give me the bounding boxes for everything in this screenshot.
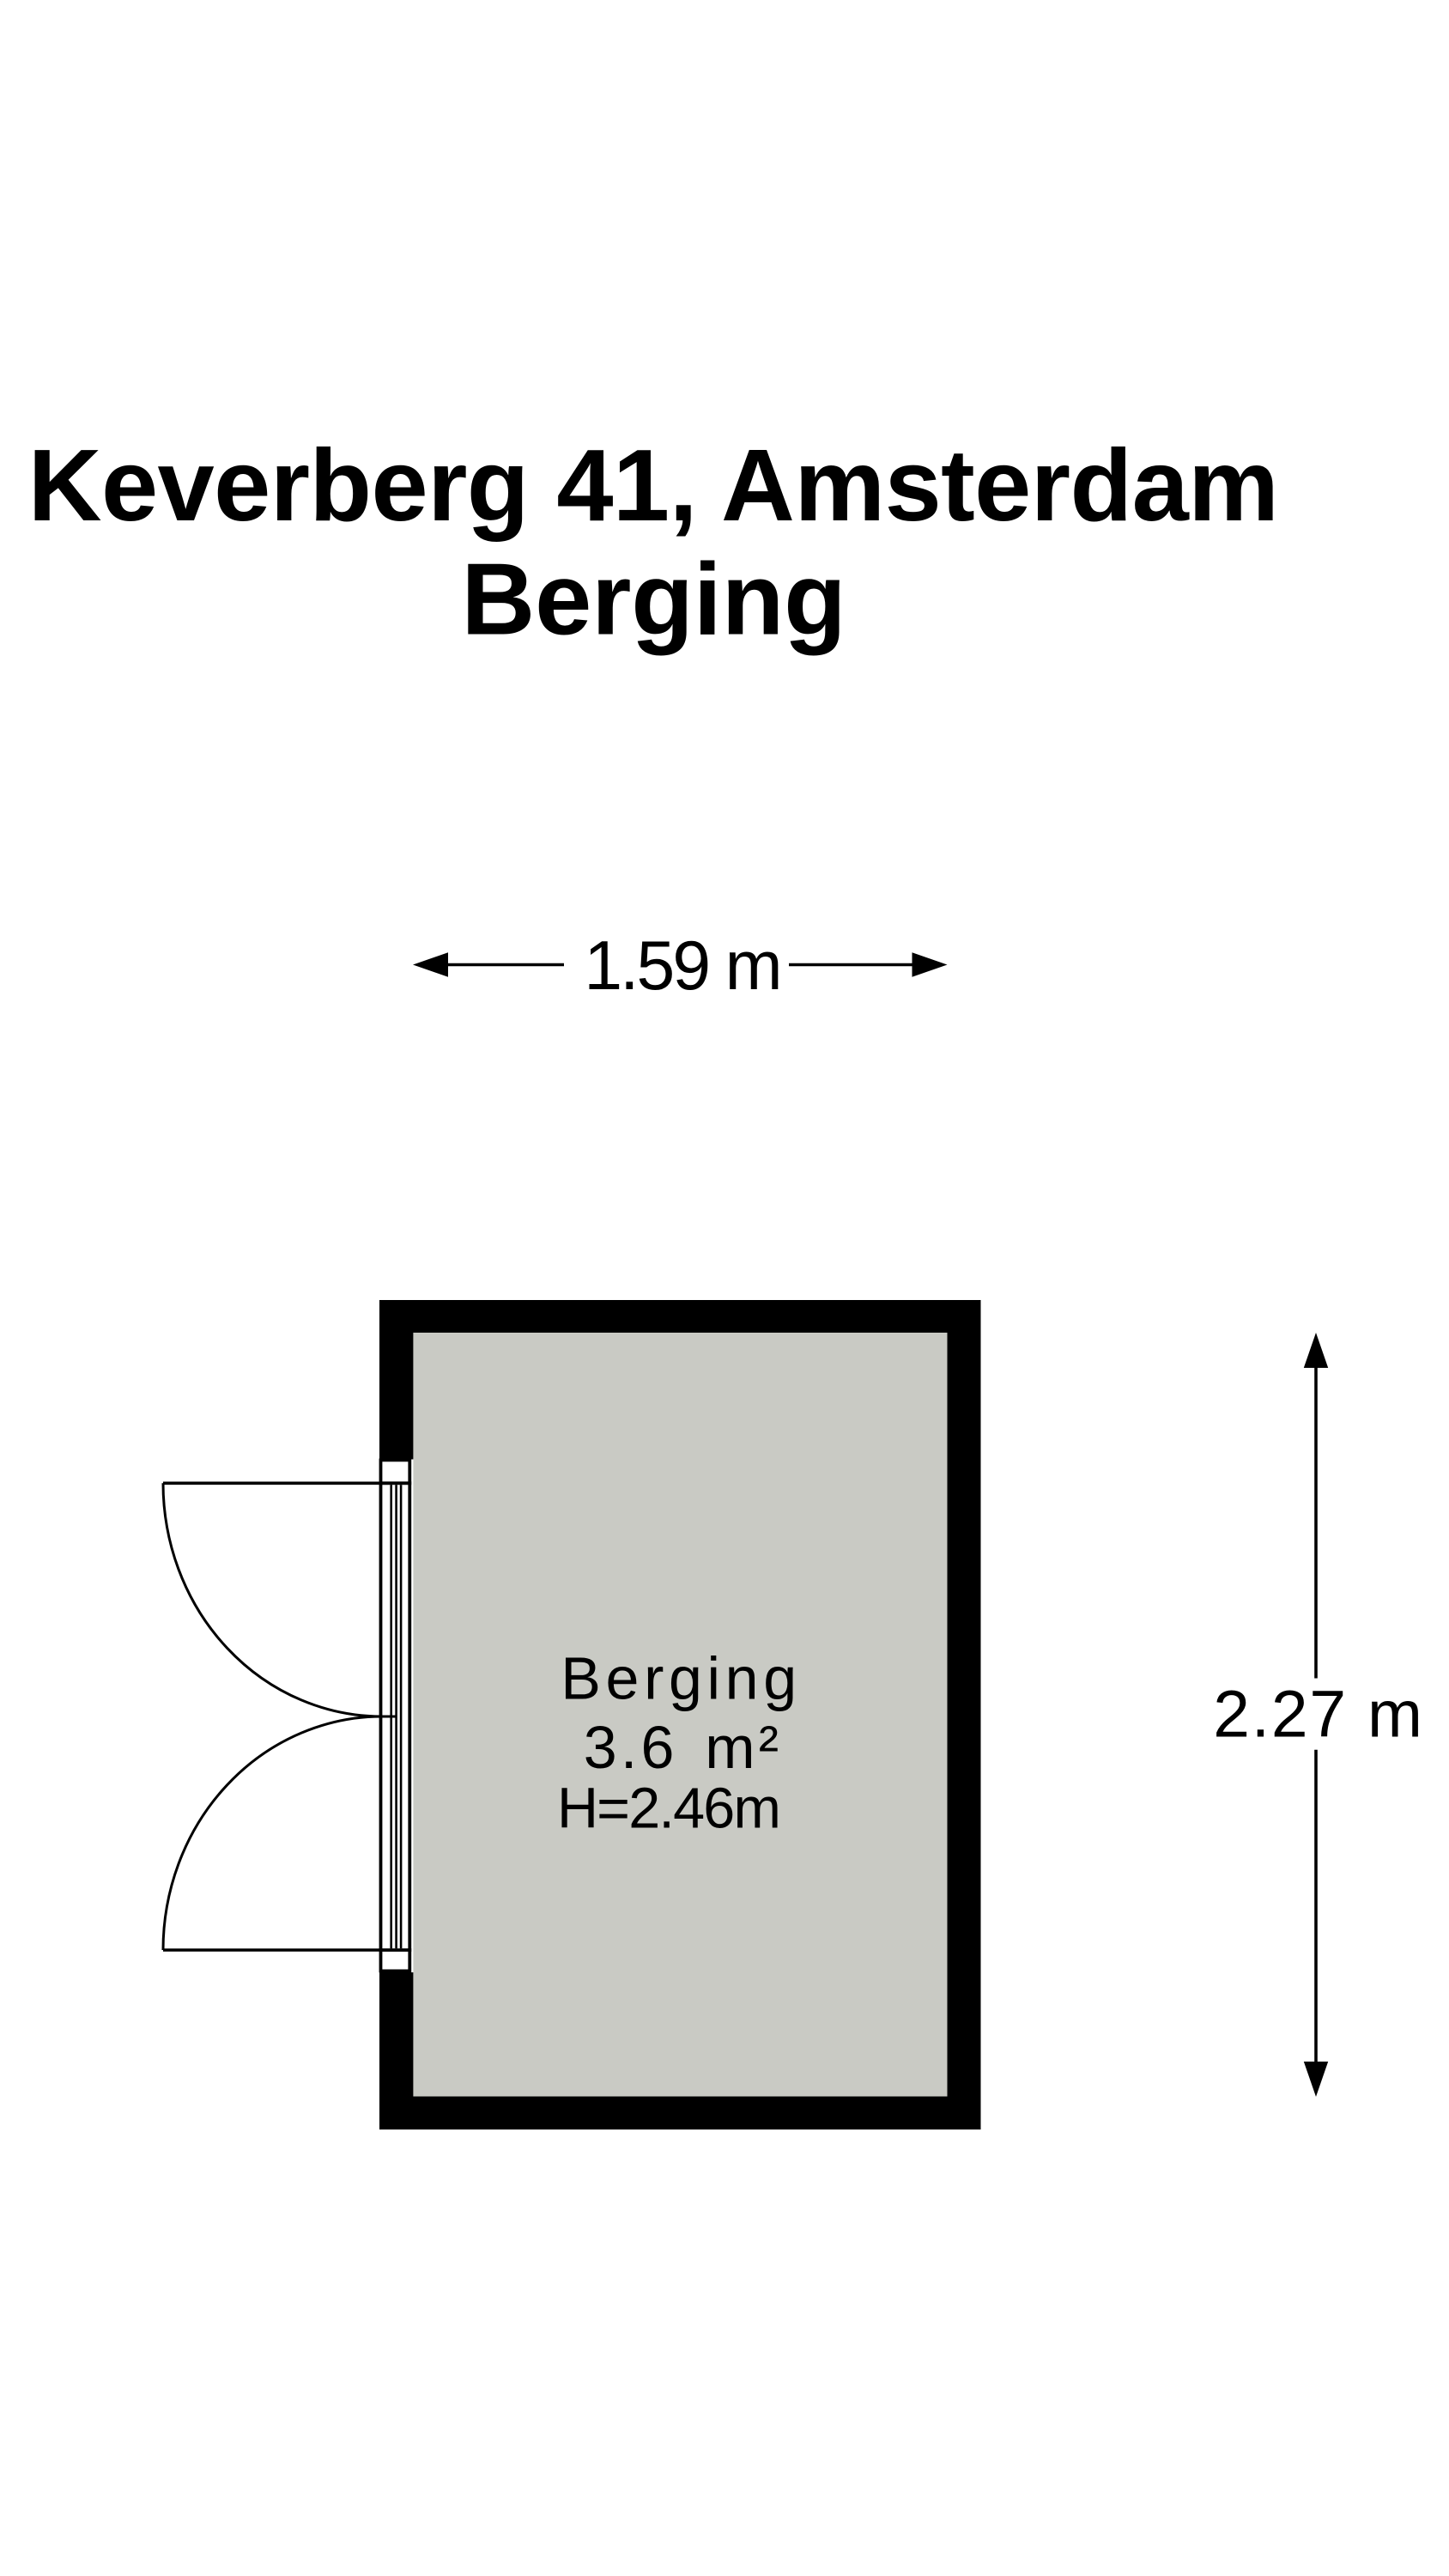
- svg-text:1.59 m: 1.59 m: [584, 927, 779, 1005]
- svg-text:Keverberg 41, Amsterdam: Keverberg 41, Amsterdam: [28, 428, 1279, 543]
- svg-text:H=2.46m: H=2.46m: [557, 1777, 779, 1841]
- svg-text:3.6 m²: 3.6 m²: [584, 1714, 783, 1781]
- svg-text:Berging: Berging: [561, 1645, 801, 1712]
- svg-text:Berging: Berging: [461, 542, 846, 656]
- svg-text:2.27 m: 2.27 m: [1213, 1677, 1424, 1751]
